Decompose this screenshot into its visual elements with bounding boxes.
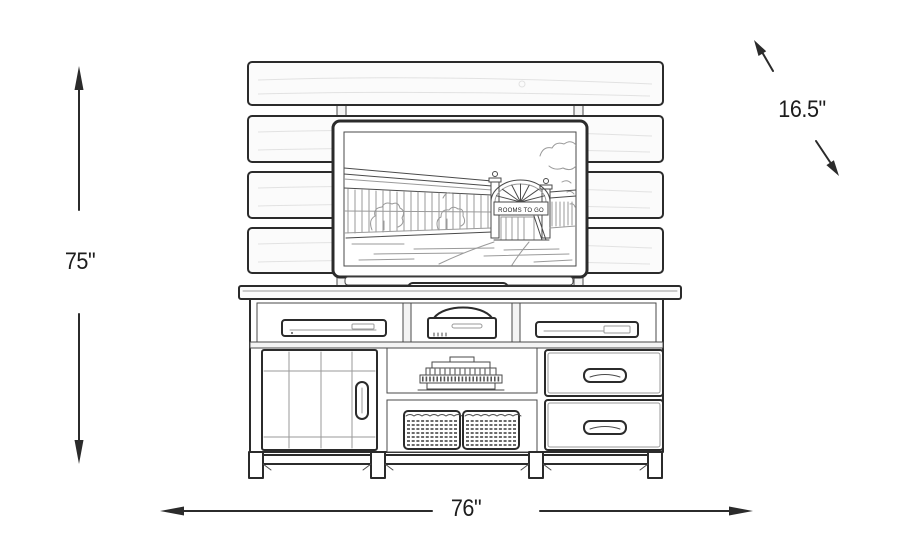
media-shelf	[250, 303, 663, 348]
plank-1	[248, 62, 663, 105]
height-dimension-label: 75"	[44, 250, 116, 274]
height-arrow-up	[75, 66, 84, 210]
drawer-bottom	[545, 400, 663, 450]
width-arrow-left	[160, 507, 432, 516]
depth-dimension-label: 16.5"	[762, 98, 841, 122]
width-arrow-right	[540, 507, 753, 516]
shelf-divider-right	[512, 303, 520, 342]
center-shelves	[387, 348, 537, 452]
drawer-handle-top	[584, 369, 626, 382]
console-top	[239, 286, 681, 299]
shelf-divider-left	[403, 303, 411, 342]
legs	[249, 452, 662, 478]
tv: ROOMS TO GO	[333, 121, 587, 296]
width-dimension-label: 76"	[425, 497, 508, 521]
depth-arrow-down-right	[816, 141, 839, 176]
product-dimension-diagram: ROOMS TO GO	[0, 0, 900, 550]
dvd-player	[282, 320, 386, 336]
drawer-top	[545, 350, 663, 396]
cabinet-door	[262, 350, 377, 450]
depth-arrow-up-left	[754, 40, 773, 71]
media-player	[536, 322, 638, 337]
basket-left	[404, 411, 462, 449]
furniture-line-art: ROOMS TO GO	[0, 0, 900, 550]
drawer-handle-bottom	[584, 421, 626, 434]
console	[239, 286, 681, 478]
tv-screen-sign-text: ROOMS TO GO	[498, 208, 544, 214]
height-arrow-down	[75, 314, 84, 464]
basket-right	[463, 411, 521, 449]
door-handle	[356, 382, 368, 419]
